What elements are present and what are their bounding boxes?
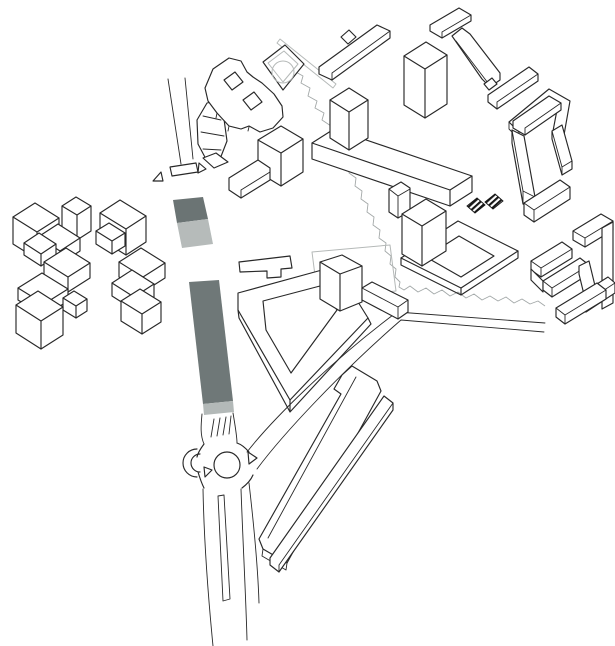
traffic-island-triangle <box>248 452 257 464</box>
crosswalk-tick <box>217 418 220 436</box>
stop-bar <box>170 163 198 176</box>
axonometric-drawing <box>0 0 615 646</box>
boulevard-strip <box>189 280 233 404</box>
v-block <box>238 255 408 412</box>
road-edge <box>185 78 193 159</box>
circle-court-building <box>263 45 304 90</box>
hatched-structure <box>467 198 485 213</box>
north-slab-with-spur <box>319 25 390 80</box>
crosswalk-tick <box>223 417 226 435</box>
west-cluster-south <box>112 248 165 334</box>
west-cluster-southwest <box>16 248 90 349</box>
traffic-island-triangle <box>204 467 212 477</box>
ring-edge <box>198 472 204 488</box>
median-island <box>218 495 230 601</box>
west-cluster-north <box>96 200 146 255</box>
crosswalk-tick <box>211 419 214 437</box>
site-plan-figure <box>0 0 615 646</box>
south-slabs <box>259 366 393 572</box>
west-slab <box>229 160 270 198</box>
courtyard-ring-block <box>401 194 518 295</box>
crosswalk-tick <box>229 416 231 434</box>
crescent-loop-inner <box>191 454 200 472</box>
block <box>63 291 87 318</box>
site-parcel-dark <box>173 197 208 223</box>
northeast-slabs <box>430 8 570 141</box>
ring-edge <box>197 444 204 457</box>
roundabout <box>183 413 257 488</box>
v-tower <box>320 255 362 311</box>
approach-edge <box>201 414 204 444</box>
crescent-loop <box>183 449 197 477</box>
s-shaped-block <box>531 242 606 324</box>
site-parcel-light <box>177 219 213 248</box>
road-edge <box>168 79 181 164</box>
traffic-island-triangle <box>198 163 206 173</box>
approach-edge <box>233 413 237 443</box>
wide-diagonal-slab <box>259 366 381 563</box>
site-parcel <box>173 197 213 248</box>
traffic-island-triangle <box>153 172 163 181</box>
boulevard-axis <box>189 280 234 415</box>
stepped-low-building <box>239 256 292 278</box>
road-edge <box>249 483 259 603</box>
road-edge <box>241 489 247 640</box>
south-road <box>203 483 259 646</box>
hatched-structure <box>485 194 503 209</box>
center-island <box>214 452 240 478</box>
slab <box>319 25 390 80</box>
ring-edge <box>237 443 249 452</box>
ring-edge <box>242 475 253 488</box>
road-edge <box>203 489 213 646</box>
